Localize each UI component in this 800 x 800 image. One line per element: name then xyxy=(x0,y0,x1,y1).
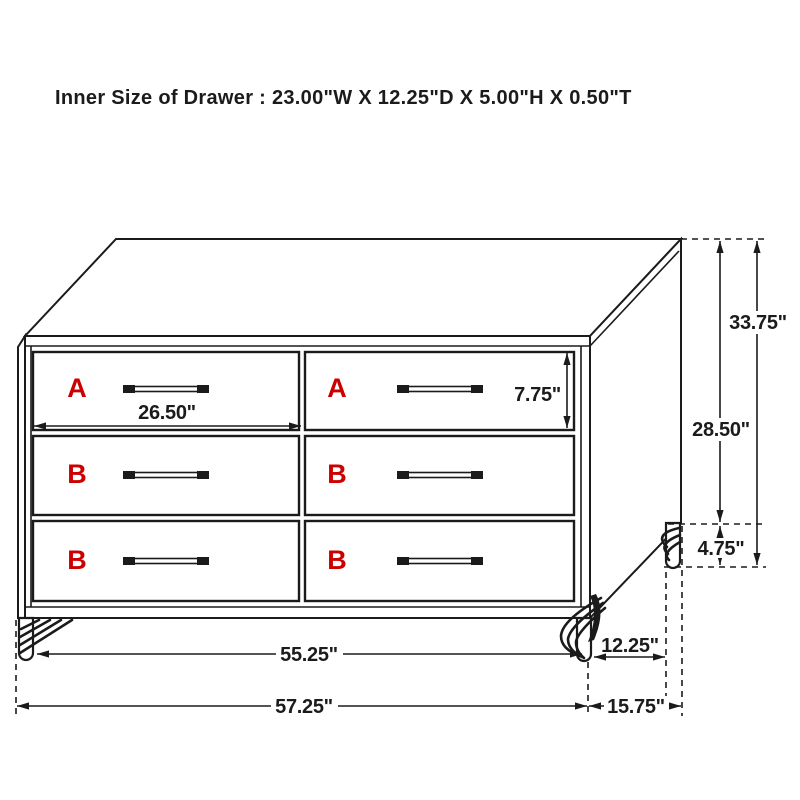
dim-label-leg-height: 4.75" xyxy=(698,538,745,560)
page-title: Inner Size of Drawer : 23.00"W X 12.25"D… xyxy=(55,87,632,109)
dim-label-overall-height: 33.75" xyxy=(729,312,787,334)
technical-drawing-page: Inner Size of Drawer : 23.00"W X 12.25"D… xyxy=(0,0,800,800)
dim-overall-depth: 15.75" xyxy=(589,696,681,718)
dim-label-drawer-height: 7.75" xyxy=(514,384,561,406)
dim-label-width-between-legs: 55.25" xyxy=(280,644,338,666)
dim-leg-depth-spacing: 12.25" xyxy=(594,635,665,657)
dim-label-overall-depth: 15.75" xyxy=(607,696,665,718)
dim-body-height: 28.50" xyxy=(687,241,755,522)
dim-label-drawer-width: 26.50" xyxy=(138,402,196,424)
dim-overall-height: 33.75" xyxy=(724,241,792,565)
dresser-dimension-diagram: Inner Size of Drawer : 23.00"W X 12.25"D… xyxy=(0,0,800,800)
cabinet-top-face xyxy=(25,239,681,336)
drawer-label-b-bottom-right: B xyxy=(327,545,347,575)
dim-overall-width: 57.25" xyxy=(17,696,587,718)
dim-label-overall-width: 57.25" xyxy=(275,696,333,718)
drawer-label-b-bottom-left: B xyxy=(67,545,87,575)
drawer-label-a-left: A xyxy=(67,373,87,403)
dim-label-leg-depth-spacing: 12.25" xyxy=(601,635,659,657)
dim-label-body-height: 28.50" xyxy=(692,419,750,441)
dim-leg-height: 4.75" xyxy=(692,526,749,565)
dim-width-between-legs: 55.25" xyxy=(37,644,582,666)
drawer-label-a-right: A xyxy=(327,373,347,403)
drawer-label-b-middle-right: B xyxy=(327,459,347,489)
cabinet-left-edge-sliver xyxy=(18,336,25,618)
drawer-label-b-middle-left: B xyxy=(67,459,87,489)
